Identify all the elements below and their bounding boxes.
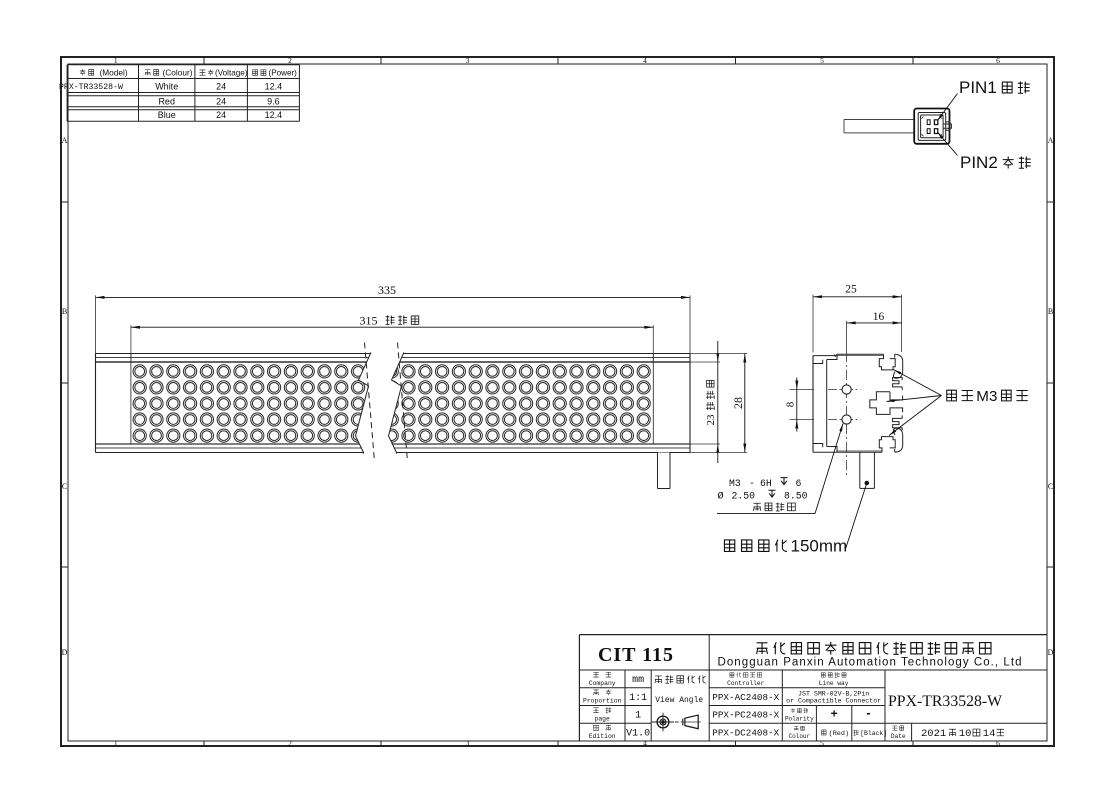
svg-text:C: C: [1048, 482, 1053, 491]
svg-text:6: 6: [996, 56, 1000, 65]
svg-text:(Red): (Red): [829, 730, 849, 738]
svg-text:6: 6: [796, 478, 802, 489]
svg-text:(Power): (Power): [269, 68, 298, 77]
svg-text:Edition: Edition: [589, 733, 616, 740]
svg-text:Red: Red: [158, 97, 175, 107]
svg-text:6: 6: [996, 739, 1000, 748]
svg-text:Polarity: Polarity: [785, 715, 814, 722]
svg-text:[Black]: [Black]: [860, 730, 887, 737]
svg-text:page: page: [595, 715, 611, 722]
svg-text:mm: mm: [632, 675, 644, 686]
svg-text:5: 5: [820, 56, 824, 65]
svg-text:A: A: [1048, 136, 1054, 145]
svg-text:Line way: Line way: [819, 680, 849, 687]
svg-text:1: 1: [114, 739, 118, 748]
svg-text:2: 2: [288, 739, 292, 748]
svg-text:PPX-DC2408-X: PPX-DC2408-X: [712, 727, 779, 738]
svg-text:PPX-TR33528-W: PPX-TR33528-W: [59, 83, 123, 92]
svg-text:Ø: Ø: [718, 491, 724, 503]
svg-text:24: 24: [216, 110, 226, 120]
svg-text:M3: M3: [729, 478, 741, 489]
svg-text:Date: Date: [891, 733, 906, 740]
svg-text:4: 4: [643, 56, 647, 65]
svg-text:1: 1: [114, 56, 118, 65]
svg-text:JST SMR-02V-B,2Pin: JST SMR-02V-B,2Pin: [798, 690, 869, 697]
svg-text:335: 335: [378, 283, 396, 297]
svg-text:Dongguan Panxin Automation Tec: Dongguan Panxin Automation Technology Co…: [718, 657, 1022, 669]
svg-text:2.50: 2.50: [732, 491, 756, 502]
svg-text:Company: Company: [589, 680, 616, 687]
svg-text:(Colour): (Colour): [163, 67, 193, 77]
svg-text:Controller: Controller: [727, 680, 764, 687]
svg-text:(Model): (Model): [100, 67, 128, 77]
svg-text:Blue: Blue: [158, 110, 176, 120]
svg-text:14: 14: [983, 728, 996, 740]
svg-text:V1.0: V1.0: [626, 728, 650, 739]
svg-text:150mm: 150mm: [791, 537, 848, 556]
svg-text:PIN1: PIN1: [959, 78, 997, 97]
svg-text:9.6: 9.6: [267, 97, 280, 107]
svg-text:Proportion: Proportion: [583, 698, 622, 705]
svg-text:8.50: 8.50: [784, 491, 808, 502]
svg-text:5: 5: [820, 739, 824, 748]
svg-text:-: -: [866, 705, 870, 720]
svg-text:B: B: [62, 307, 67, 316]
svg-text:PIN2: PIN2: [960, 153, 998, 172]
svg-text:4: 4: [643, 739, 647, 748]
svg-text:16: 16: [873, 311, 885, 323]
svg-text:3: 3: [466, 56, 470, 65]
svg-text:23: 23: [705, 414, 717, 426]
svg-text:(Voltage): (Voltage): [215, 68, 248, 77]
svg-text:Colour: Colour: [789, 733, 811, 740]
svg-text:D: D: [62, 648, 68, 657]
svg-text:2: 2: [288, 56, 292, 65]
svg-text:A: A: [62, 136, 68, 145]
svg-text:6H: 6H: [760, 478, 772, 489]
svg-text:315: 315: [360, 313, 378, 327]
svg-text:1:1: 1:1: [629, 693, 647, 704]
svg-text:PPX-AC2408-X: PPX-AC2408-X: [712, 692, 779, 703]
svg-text:White: White: [155, 81, 178, 91]
svg-text:2021: 2021: [921, 728, 946, 740]
svg-text:3: 3: [466, 739, 470, 748]
svg-text:12.4: 12.4: [265, 110, 283, 120]
svg-text:M3: M3: [976, 388, 997, 405]
svg-text:B: B: [1048, 307, 1053, 316]
svg-text:or Compactible Connector: or Compactible Connector: [786, 698, 881, 705]
svg-text:PPX-TR33528-W: PPX-TR33528-W: [888, 693, 1002, 710]
svg-text:10: 10: [959, 728, 972, 740]
svg-text:C: C: [62, 482, 67, 491]
svg-text:12.4: 12.4: [265, 81, 283, 91]
svg-text:8: 8: [785, 401, 797, 407]
svg-text:28: 28: [731, 397, 745, 409]
svg-text:+: +: [831, 707, 838, 721]
svg-text:PPX-PC2408-X: PPX-PC2408-X: [712, 710, 779, 721]
svg-text:1: 1: [635, 711, 641, 722]
svg-text:CIT 115: CIT 115: [598, 644, 674, 666]
svg-text:View Angle: View Angle: [655, 696, 703, 705]
svg-text:-: -: [749, 478, 755, 489]
svg-text:24: 24: [216, 81, 226, 91]
svg-text:D: D: [1048, 648, 1054, 657]
svg-text:25: 25: [845, 283, 857, 295]
svg-text:24: 24: [216, 97, 226, 107]
